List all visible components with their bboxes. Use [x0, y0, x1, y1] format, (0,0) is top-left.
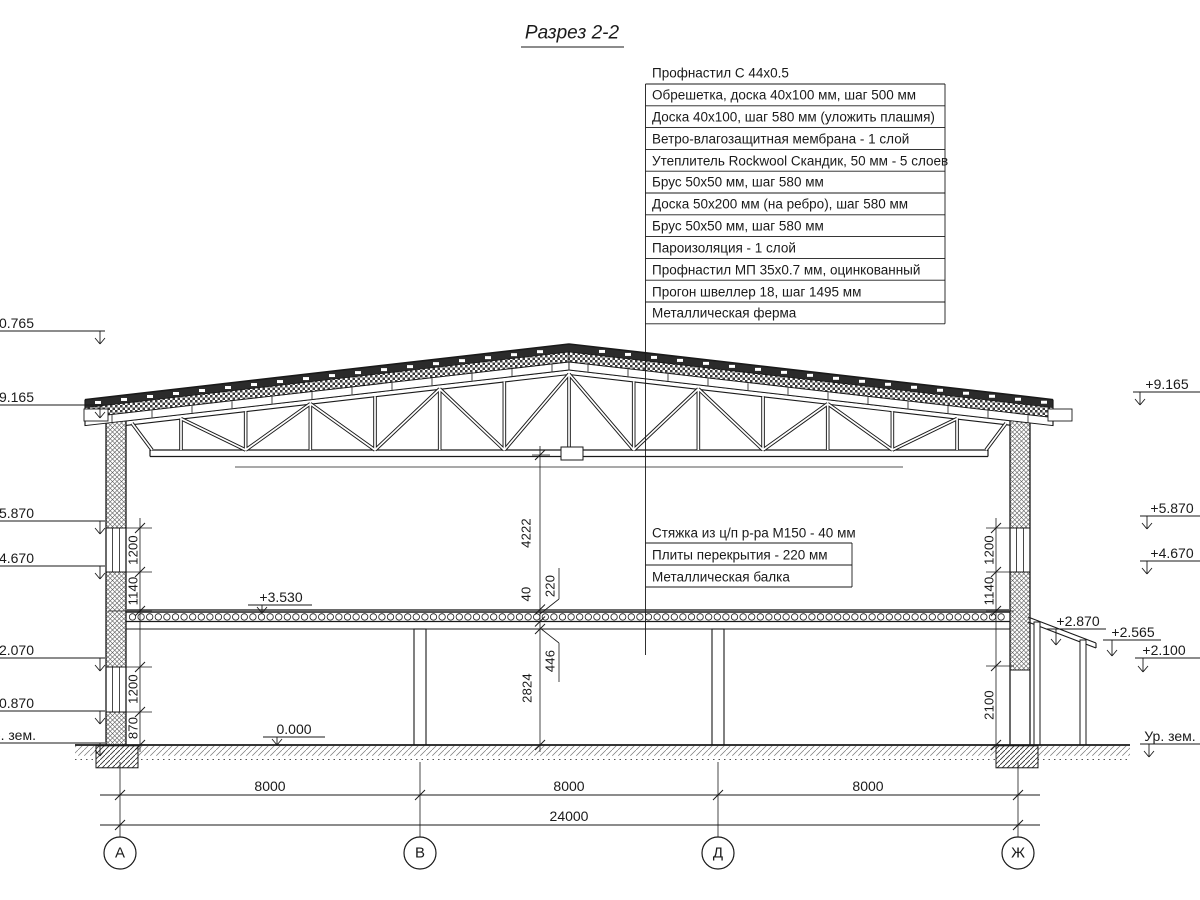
dim-left-sill-lower: 870	[127, 717, 140, 739]
dim-left-window-upper: 1200	[127, 535, 140, 565]
dim-span: 8000	[553, 779, 584, 793]
floor-slab	[126, 609, 1010, 745]
dim-beam: 446	[544, 650, 557, 672]
roof-callout-item: Профнастил МП 35х0.7 мм, оцинкованный	[652, 263, 920, 277]
floor-level-mark: 0.000	[276, 722, 311, 736]
slab-level-mark: +3.530	[259, 590, 302, 604]
ground-line	[75, 745, 1130, 768]
dim-span: 8000	[254, 779, 285, 793]
annex-leanto	[1028, 617, 1096, 745]
elevation-mark-right: +4.670	[1150, 546, 1193, 560]
axis-bubble-d: Д	[713, 846, 723, 861]
elevation-mark-left: +10.765	[0, 316, 34, 330]
floor-callout-item: Металлическая балка	[652, 570, 790, 584]
roof-callout-item: Доска 50х200 мм (на ребро), шаг 580 мм	[652, 197, 908, 211]
dim-left-sill-upper: 1140	[127, 577, 140, 606]
dim-right-sill: 1140	[983, 577, 996, 606]
axis-bubble-v: В	[415, 846, 425, 861]
dim-span: 8000	[852, 779, 883, 793]
dim-truss-clearance: 4222	[520, 518, 533, 548]
dim-right-window: 1200	[983, 535, 996, 565]
roof-callout-item: Металлическая ферма	[652, 306, 796, 320]
floor-callout-item: Плиты перекрытия - 220 мм	[652, 548, 828, 562]
elevation-mark-left: +5.870	[0, 506, 34, 520]
roof-callout-item: Брус 50х50 мм, шаг 580 мм	[652, 219, 824, 233]
axis-bubble-zh: Ж	[1011, 846, 1025, 861]
roof-callout-item: Утеплитель Rockwool Скандик, 50 мм - 5 с…	[652, 154, 948, 168]
roof-callout-item: Пароизоляция - 1 слой	[652, 241, 796, 255]
dim-total: 24000	[550, 809, 589, 823]
floor-callout-item: Стяжка из ц/п р-ра М150 - 40 мм	[652, 526, 856, 540]
roof-callout-item: Обрешетка, доска 40х100 мм, шаг 500 мм	[652, 88, 916, 102]
elevation-mark-left: +0.870	[0, 696, 34, 710]
ground-level-label-right: Ур. зем.	[1144, 729, 1195, 743]
blueprint-canvas: { "title": "Разрез 2-2", "roof_callouts"…	[0, 0, 1200, 900]
section-drawing	[0, 0, 1200, 900]
elevation-mark-left: +9.165	[0, 390, 34, 404]
dim-screed: 40	[520, 587, 533, 602]
elevation-mark-right: +9.165	[1145, 377, 1188, 391]
roof-callout-item: Профнастил С 44х0.5	[652, 66, 789, 80]
drawing-title-text: Разрез 2-2	[525, 24, 619, 43]
dim-left-window-lower: 1200	[127, 674, 140, 704]
dim-slab: 220	[544, 575, 557, 597]
roof-callout-item: Брус 50х50 мм, шаг 580 мм	[652, 175, 824, 189]
elevation-mark-right: +5.870	[1150, 501, 1193, 515]
roof-callout-item: Ветро-влагозащитная мембрана - 1 слой	[652, 132, 909, 146]
roof-callout-item: Прогон швеллер 18, шаг 1495 мм	[652, 285, 861, 299]
dim-first-floor-clearance: 2824	[521, 673, 534, 703]
ground-level-label-left: Ур. зем.	[0, 728, 36, 742]
dim-right-opening: 2100	[983, 690, 996, 720]
elevation-mark-right: +2.100	[1142, 643, 1185, 657]
axis-bubble-a: А	[115, 846, 125, 861]
elevation-mark-right: +2.870	[1056, 614, 1099, 628]
roof-callout-item: Доска 40х100, шаг 580 мм (уложить плашмя…	[652, 110, 935, 124]
elevation-mark-right: +2.565	[1111, 625, 1154, 639]
elevation-mark-left: +2.070	[0, 643, 34, 657]
elevation-mark-left: +4.670	[0, 551, 34, 565]
